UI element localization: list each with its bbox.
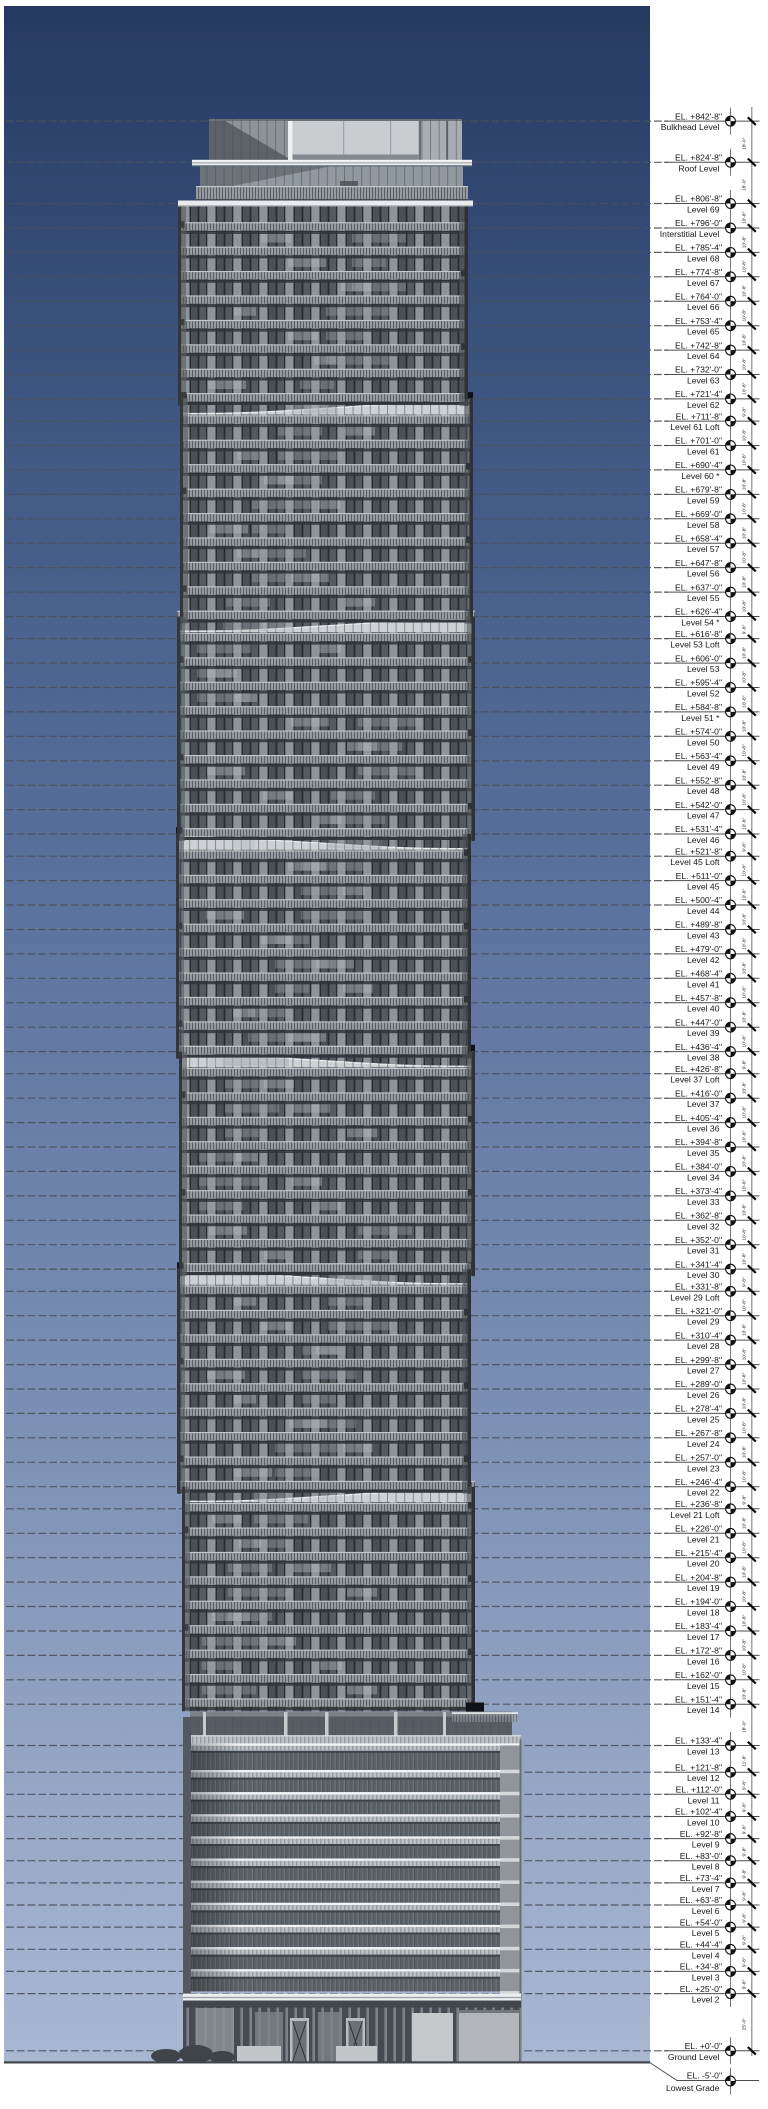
svg-text:18'-0": 18'-0" bbox=[742, 179, 748, 192]
svg-text:18'-0": 18'-0" bbox=[742, 1720, 748, 1733]
svg-text:EL. +563'-4": EL. +563'-4" bbox=[675, 751, 722, 761]
svg-text:EL. +133'-4": EL. +133'-4" bbox=[675, 1736, 722, 1746]
svg-text:EL. +824'-8": EL. +824'-8" bbox=[675, 153, 722, 163]
svg-text:EL. +753'-4": EL. +753'-4" bbox=[675, 316, 722, 326]
svg-text:Level 8: Level 8 bbox=[692, 1862, 720, 1872]
svg-text:Interstitial Level: Interstitial Level bbox=[660, 229, 720, 239]
svg-text:10'-8": 10'-8" bbox=[742, 1397, 748, 1410]
svg-text:10'-8": 10'-8" bbox=[742, 478, 748, 491]
svg-text:10'-8": 10'-8" bbox=[742, 1639, 748, 1652]
svg-text:Level 23: Level 23 bbox=[687, 1463, 720, 1473]
svg-text:Level 15: Level 15 bbox=[687, 1681, 720, 1691]
svg-text:Level 46: Level 46 bbox=[687, 835, 720, 845]
svg-text:Bulkhead Level: Bulkhead Level bbox=[661, 122, 720, 132]
svg-text:Level 63: Level 63 bbox=[687, 376, 720, 386]
svg-text:EL. +542'-0": EL. +542'-0" bbox=[675, 800, 722, 810]
svg-text:Level 53: Level 53 bbox=[687, 664, 720, 674]
svg-text:EL. +172'-8": EL. +172'-8" bbox=[675, 1646, 722, 1656]
svg-text:10'-8": 10'-8" bbox=[742, 962, 748, 975]
svg-text:10'-8": 10'-8" bbox=[742, 236, 748, 249]
svg-text:Level 37: Level 37 bbox=[687, 1099, 720, 1109]
svg-text:EL. +606'-0": EL. +606'-0" bbox=[675, 653, 722, 663]
svg-text:9'-8": 9'-8" bbox=[742, 1495, 748, 1505]
svg-text:10'-8": 10'-8" bbox=[742, 211, 748, 224]
svg-text:10'-8": 10'-8" bbox=[742, 1253, 748, 1266]
svg-text:10'-8": 10'-8" bbox=[742, 937, 748, 950]
svg-text:EL. +669'-0": EL. +669'-0" bbox=[675, 509, 722, 519]
svg-text:10'-8": 10'-8" bbox=[742, 1179, 748, 1192]
svg-text:9'-8": 9'-8" bbox=[742, 1957, 748, 1967]
svg-text:Level 36: Level 36 bbox=[687, 1124, 720, 1134]
svg-text:Level 16: Level 16 bbox=[687, 1656, 720, 1666]
svg-text:10'-8": 10'-8" bbox=[742, 429, 748, 442]
svg-text:EL. +194'-0": EL. +194'-0" bbox=[675, 1597, 722, 1607]
svg-text:Level 59: Level 59 bbox=[687, 495, 720, 505]
svg-text:10'-8": 10'-8" bbox=[742, 453, 748, 466]
svg-text:EL. +732'-0": EL. +732'-0" bbox=[675, 365, 722, 375]
svg-text:Level 60 *: Level 60 * bbox=[681, 471, 720, 481]
svg-text:EL. +236'-8": EL. +236'-8" bbox=[675, 1499, 722, 1509]
svg-text:9'-8": 9'-8" bbox=[742, 407, 748, 417]
svg-text:10'-8": 10'-8" bbox=[742, 671, 748, 684]
svg-text:10'-8": 10'-8" bbox=[742, 720, 748, 733]
svg-text:EL. +331'-8": EL. +331'-8" bbox=[675, 1282, 722, 1292]
svg-text:10'-8": 10'-8" bbox=[742, 864, 748, 877]
svg-text:Level 22: Level 22 bbox=[687, 1488, 720, 1498]
svg-text:EL. +384'-0": EL. +384'-0" bbox=[675, 1162, 722, 1172]
svg-text:Level 14: Level 14 bbox=[687, 1705, 720, 1715]
svg-text:9'-8": 9'-8" bbox=[742, 1979, 748, 1989]
svg-text:Level 65: Level 65 bbox=[687, 327, 720, 337]
svg-text:EL. +457'-8": EL. +457'-8" bbox=[675, 993, 722, 1003]
svg-text:Level 53 Loft: Level 53 Loft bbox=[670, 640, 720, 650]
svg-text:Level 40: Level 40 bbox=[687, 1004, 720, 1014]
svg-text:Level 61 Loft: Level 61 Loft bbox=[670, 422, 720, 432]
svg-text:Level 50: Level 50 bbox=[687, 737, 720, 747]
svg-text:EL. +267'-8": EL. +267'-8" bbox=[675, 1428, 722, 1438]
svg-text:EL. -5'-0": EL. -5'-0" bbox=[687, 2071, 722, 2081]
svg-text:Level 69: Level 69 bbox=[687, 205, 720, 215]
svg-text:10'-8": 10'-8" bbox=[742, 1082, 748, 1095]
svg-text:10'-8": 10'-8" bbox=[742, 1228, 748, 1241]
svg-text:9'-8": 9'-8" bbox=[742, 1780, 748, 1790]
svg-text:EL. +310'-4": EL. +310'-4" bbox=[675, 1330, 722, 1340]
svg-text:Level 33: Level 33 bbox=[687, 1197, 720, 1207]
svg-text:9'-8": 9'-8" bbox=[742, 1060, 748, 1070]
svg-text:Level 27: Level 27 bbox=[687, 1366, 720, 1376]
svg-text:EL. +552'-8": EL. +552'-8" bbox=[675, 775, 722, 785]
svg-text:EL. +637'-0": EL. +637'-0" bbox=[675, 582, 722, 592]
svg-text:EL. +73'-4": EL. +73'-4" bbox=[680, 1873, 722, 1883]
svg-text:Level 68: Level 68 bbox=[687, 253, 720, 263]
svg-text:EL. +34'-8": EL. +34'-8" bbox=[680, 1962, 722, 1972]
svg-text:10'-8": 10'-8" bbox=[742, 1130, 748, 1143]
svg-text:10'-8": 10'-8" bbox=[742, 1299, 748, 1312]
svg-text:10'-8": 10'-8" bbox=[742, 986, 748, 999]
svg-text:EL. +742'-8": EL. +742'-8" bbox=[675, 340, 722, 350]
svg-text:Level 41: Level 41 bbox=[687, 979, 720, 989]
svg-text:EL. +489'-8": EL. +489'-8" bbox=[675, 920, 722, 930]
svg-text:Lowest Grade: Lowest Grade bbox=[666, 2083, 720, 2093]
svg-text:10'-8": 10'-8" bbox=[742, 817, 748, 830]
svg-text:10'-8": 10'-8" bbox=[742, 1614, 748, 1627]
svg-text:10'-8": 10'-8" bbox=[742, 1663, 748, 1676]
svg-text:9'-8": 9'-8" bbox=[742, 1913, 748, 1923]
svg-text:Level 26: Level 26 bbox=[687, 1390, 720, 1400]
svg-text:EL. +626'-4": EL. +626'-4" bbox=[675, 607, 722, 617]
svg-text:9'-8": 9'-8" bbox=[742, 1847, 748, 1857]
svg-text:Level 43: Level 43 bbox=[687, 931, 720, 941]
svg-text:10'-8": 10'-8" bbox=[742, 1517, 748, 1530]
svg-text:EL. +436'-4": EL. +436'-4" bbox=[675, 1042, 722, 1052]
svg-text:EL. +151'-4": EL. +151'-4" bbox=[675, 1694, 722, 1704]
svg-text:Level 10: Level 10 bbox=[687, 1818, 720, 1828]
svg-text:Level 34: Level 34 bbox=[687, 1172, 720, 1182]
svg-text:EL. +204'-8": EL. +204'-8" bbox=[675, 1572, 722, 1582]
svg-text:EL. +426'-8": EL. +426'-8" bbox=[675, 1064, 722, 1074]
svg-text:10'-8": 10'-8" bbox=[742, 793, 748, 806]
svg-text:10'-8": 10'-8" bbox=[742, 1590, 748, 1603]
svg-text:EL. +774'-8": EL. +774'-8" bbox=[675, 267, 722, 277]
svg-text:Level 61: Level 61 bbox=[687, 447, 720, 457]
svg-text:Level 48: Level 48 bbox=[687, 786, 720, 796]
svg-text:EL. +584'-8": EL. +584'-8" bbox=[675, 702, 722, 712]
svg-text:10'-8": 10'-8" bbox=[742, 1446, 748, 1459]
svg-text:EL. +711'-8": EL. +711'-8" bbox=[676, 411, 722, 421]
svg-text:10'-8": 10'-8" bbox=[742, 1470, 748, 1483]
svg-text:25'-0": 25'-0" bbox=[742, 2018, 748, 2031]
svg-text:Level 12: Level 12 bbox=[687, 1773, 720, 1783]
svg-text:Level 2: Level 2 bbox=[692, 1995, 720, 2005]
svg-text:EL. +764'-0": EL. +764'-0" bbox=[675, 291, 722, 301]
svg-text:10'-8": 10'-8" bbox=[742, 913, 748, 926]
svg-text:EL. +416'-0": EL. +416'-0" bbox=[675, 1088, 722, 1098]
svg-text:EL. +215'-4": EL. +215'-4" bbox=[675, 1548, 722, 1558]
svg-text:Level 19: Level 19 bbox=[687, 1583, 720, 1593]
svg-text:EL. +521'-8": EL. +521'-8" bbox=[675, 846, 722, 856]
svg-text:EL. +658'-4": EL. +658'-4" bbox=[675, 533, 722, 543]
svg-text:Level 20: Level 20 bbox=[687, 1559, 720, 1569]
svg-text:EL. +63'-8": EL. +63'-8" bbox=[680, 1895, 722, 1905]
svg-text:Level 66: Level 66 bbox=[687, 302, 720, 312]
svg-text:10'-8": 10'-8" bbox=[742, 888, 748, 901]
svg-text:EL. +679'-8": EL. +679'-8" bbox=[675, 485, 722, 495]
svg-text:10'-8": 10'-8" bbox=[742, 576, 748, 589]
svg-text:EL. +842'-8": EL. +842'-8" bbox=[675, 111, 722, 121]
svg-text:9'-8": 9'-8" bbox=[742, 1277, 748, 1287]
svg-text:Level 21 Loft: Level 21 Loft bbox=[670, 1510, 720, 1520]
svg-text:10'-8": 10'-8" bbox=[742, 1372, 748, 1385]
svg-text:9'-8": 9'-8" bbox=[742, 1824, 748, 1834]
svg-text:EL. +289'-0": EL. +289'-0" bbox=[675, 1379, 722, 1389]
svg-text:Level 25: Level 25 bbox=[687, 1414, 720, 1424]
svg-text:EL. +373'-4": EL. +373'-4" bbox=[675, 1186, 722, 1196]
svg-text:EL. +278'-4": EL. +278'-4" bbox=[675, 1404, 722, 1414]
svg-text:Roof Level: Roof Level bbox=[678, 163, 719, 173]
svg-text:EL. +226'-0": EL. +226'-0" bbox=[675, 1524, 722, 1534]
svg-text:EL. +806'-8": EL. +806'-8" bbox=[675, 194, 722, 204]
svg-text:EL. +25'-0": EL. +25'-0" bbox=[680, 1984, 722, 1994]
svg-text:Level 29: Level 29 bbox=[687, 1317, 720, 1327]
svg-text:Level 32: Level 32 bbox=[687, 1221, 720, 1231]
svg-text:EL. +299'-8": EL. +299'-8" bbox=[675, 1355, 722, 1365]
svg-text:Level 37 Loft: Level 37 Loft bbox=[670, 1075, 720, 1085]
svg-text:Level 67: Level 67 bbox=[687, 278, 720, 288]
svg-text:10'-8": 10'-8" bbox=[742, 744, 748, 757]
svg-text:Level 6: Level 6 bbox=[692, 1906, 720, 1916]
svg-text:Level 21: Level 21 bbox=[687, 1534, 720, 1544]
svg-text:Level 64: Level 64 bbox=[687, 351, 720, 361]
svg-text:Level 4: Level 4 bbox=[692, 1950, 720, 1960]
svg-text:EL. +44'-4": EL. +44'-4" bbox=[680, 1940, 722, 1950]
svg-text:EL. +54'-0": EL. +54'-0" bbox=[680, 1917, 722, 1927]
svg-text:EL. +112'-0": EL. +112'-0" bbox=[676, 1785, 722, 1795]
svg-text:10'-8": 10'-8" bbox=[742, 1566, 748, 1579]
svg-text:10'-8": 10'-8" bbox=[742, 358, 748, 371]
svg-text:Level 44: Level 44 bbox=[687, 906, 720, 916]
svg-text:Level 58: Level 58 bbox=[687, 520, 720, 530]
svg-text:Level 45 Loft: Level 45 Loft bbox=[670, 857, 720, 867]
svg-text:18'-0": 18'-0" bbox=[742, 137, 748, 150]
svg-text:9'-8": 9'-8" bbox=[742, 1869, 748, 1879]
svg-text:Level 38: Level 38 bbox=[687, 1053, 720, 1063]
svg-text:9'-8": 9'-8" bbox=[742, 1802, 748, 1812]
svg-text:EL. +796'-0": EL. +796'-0" bbox=[675, 218, 722, 228]
svg-text:10'-8": 10'-8" bbox=[742, 769, 748, 782]
svg-text:Level 55: Level 55 bbox=[687, 593, 720, 603]
svg-text:11'-8": 11'-8" bbox=[742, 1755, 748, 1767]
svg-text:Level 54 *: Level 54 * bbox=[681, 618, 720, 628]
svg-text:Level 31: Level 31 bbox=[687, 1246, 720, 1256]
svg-text:Level 5: Level 5 bbox=[692, 1928, 720, 1938]
svg-text:Ground Level: Ground Level bbox=[668, 2052, 720, 2062]
svg-text:EL. +616'-8": EL. +616'-8" bbox=[675, 629, 722, 639]
svg-text:Level 28: Level 28 bbox=[687, 1341, 720, 1351]
svg-text:9'-8": 9'-8" bbox=[742, 1891, 748, 1901]
svg-text:Level 52: Level 52 bbox=[687, 689, 720, 699]
svg-text:EL. +0'-0": EL. +0'-0" bbox=[685, 2041, 722, 2051]
svg-text:Level 13: Level 13 bbox=[687, 1747, 720, 1757]
svg-text:10'-8": 10'-8" bbox=[742, 260, 748, 273]
svg-text:Level 47: Level 47 bbox=[687, 811, 720, 821]
svg-text:EL. +595'-4": EL. +595'-4" bbox=[675, 678, 722, 688]
svg-text:10'-8": 10'-8" bbox=[742, 527, 748, 540]
svg-text:EL. +352'-0": EL. +352'-0" bbox=[675, 1235, 722, 1245]
svg-text:Level 42: Level 42 bbox=[687, 955, 720, 965]
svg-text:EL. +102'-4": EL. +102'-4" bbox=[675, 1807, 722, 1817]
svg-text:EL. +162'-0": EL. +162'-0" bbox=[675, 1670, 722, 1680]
svg-text:10'-8": 10'-8" bbox=[742, 1348, 748, 1361]
svg-text:EL. +721'-4": EL. +721'-4" bbox=[675, 389, 722, 399]
svg-text:Level 45: Level 45 bbox=[687, 882, 720, 892]
svg-text:EL. +574'-0": EL. +574'-0" bbox=[675, 727, 722, 737]
svg-text:EL. +468'-4": EL. +468'-4" bbox=[675, 969, 722, 979]
svg-text:10'-8": 10'-8" bbox=[742, 285, 748, 298]
svg-text:EL. +257'-0": EL. +257'-0" bbox=[675, 1453, 722, 1463]
svg-text:10'-8": 10'-8" bbox=[742, 695, 748, 708]
svg-text:10'-8": 10'-8" bbox=[742, 1541, 748, 1554]
svg-text:EL. +121'-8": EL. +121'-8" bbox=[675, 1762, 722, 1772]
svg-text:EL. +394'-8": EL. +394'-8" bbox=[675, 1137, 722, 1147]
svg-text:9'-8": 9'-8" bbox=[742, 842, 748, 852]
svg-text:10'-8": 10'-8" bbox=[742, 1204, 748, 1217]
svg-text:EL. +479'-0": EL. +479'-0" bbox=[675, 944, 722, 954]
svg-text:10'-8": 10'-8" bbox=[742, 382, 748, 395]
svg-text:Level 11: Level 11 bbox=[688, 1795, 720, 1805]
svg-text:10'-8": 10'-8" bbox=[742, 1324, 748, 1337]
svg-text:EL. +341'-4": EL. +341'-4" bbox=[675, 1259, 722, 1269]
svg-text:Level 9: Level 9 bbox=[692, 1840, 720, 1850]
svg-text:Level 35: Level 35 bbox=[687, 1148, 720, 1158]
svg-text:Level 18: Level 18 bbox=[687, 1608, 720, 1618]
svg-text:EL. +647'-8": EL. +647'-8" bbox=[675, 558, 722, 568]
svg-text:Level 17: Level 17 bbox=[687, 1632, 720, 1642]
svg-text:Level 49: Level 49 bbox=[687, 762, 720, 772]
svg-text:EL. +447'-0": EL. +447'-0" bbox=[675, 1017, 722, 1027]
svg-text:10'-8": 10'-8" bbox=[742, 309, 748, 322]
svg-text:10'-8": 10'-8" bbox=[742, 1421, 748, 1434]
svg-text:Level 39: Level 39 bbox=[687, 1028, 720, 1038]
svg-text:Level 3: Level 3 bbox=[692, 1972, 720, 1982]
svg-text:10'-8": 10'-8" bbox=[742, 647, 748, 660]
svg-text:9'-8": 9'-8" bbox=[742, 1935, 748, 1945]
svg-text:EL. +321'-0": EL. +321'-0" bbox=[675, 1306, 722, 1316]
svg-text:Level 30: Level 30 bbox=[687, 1270, 720, 1280]
svg-text:10'-8": 10'-8" bbox=[742, 334, 748, 347]
svg-text:10'-8": 10'-8" bbox=[742, 1155, 748, 1168]
svg-text:9'-8": 9'-8" bbox=[742, 624, 748, 634]
svg-text:Level 62: Level 62 bbox=[687, 400, 720, 410]
svg-text:EL. +362'-8": EL. +362'-8" bbox=[675, 1211, 722, 1221]
svg-text:10'-8": 10'-8" bbox=[742, 600, 748, 613]
svg-text:EL. +701'-0": EL. +701'-0" bbox=[675, 436, 722, 446]
svg-text:EL. +511'-0": EL. +511'-0" bbox=[676, 871, 722, 881]
svg-text:10'-8": 10'-8" bbox=[742, 1011, 748, 1024]
svg-text:EL. +183'-4": EL. +183'-4" bbox=[675, 1621, 722, 1631]
svg-text:EL. +83'-0": EL. +83'-0" bbox=[680, 1851, 722, 1861]
svg-text:10'-8": 10'-8" bbox=[742, 551, 748, 564]
svg-text:Level 56: Level 56 bbox=[687, 569, 720, 579]
svg-text:EL. +246'-4": EL. +246'-4" bbox=[675, 1477, 722, 1487]
svg-text:Level 24: Level 24 bbox=[687, 1439, 720, 1449]
svg-text:Level 7: Level 7 bbox=[692, 1884, 720, 1894]
svg-text:EL. +531'-4": EL. +531'-4" bbox=[675, 824, 722, 834]
svg-text:EL. +405'-4": EL. +405'-4" bbox=[675, 1113, 722, 1123]
svg-text:EL. +500'-4": EL. +500'-4" bbox=[675, 895, 722, 905]
svg-text:Level 29 Loft: Level 29 Loft bbox=[670, 1292, 720, 1302]
svg-text:10'-8": 10'-8" bbox=[742, 1035, 748, 1048]
svg-text:Level 51 *: Level 51 * bbox=[681, 713, 720, 723]
svg-text:EL. +92'-8": EL. +92'-8" bbox=[680, 1829, 722, 1839]
svg-text:Level 57: Level 57 bbox=[687, 544, 720, 554]
svg-text:10'-8": 10'-8" bbox=[742, 502, 748, 515]
svg-text:10'-8": 10'-8" bbox=[742, 1106, 748, 1119]
svg-text:EL. +690'-4": EL. +690'-4" bbox=[675, 460, 722, 470]
svg-text:EL. +785'-4": EL. +785'-4" bbox=[675, 243, 722, 253]
svg-text:10'-8": 10'-8" bbox=[742, 1688, 748, 1701]
